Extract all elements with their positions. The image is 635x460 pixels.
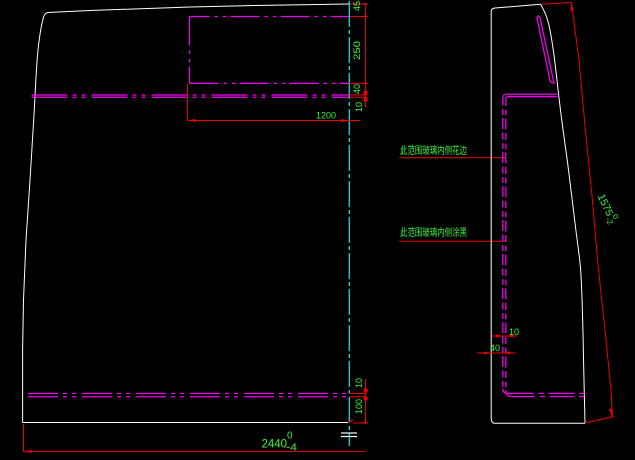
svg-text:0: 0 — [287, 431, 293, 442]
svg-text:40: 40 — [352, 84, 362, 94]
svg-text:1200: 1200 — [316, 111, 336, 121]
svg-text:40: 40 — [490, 343, 500, 353]
svg-text:45: 45 — [352, 1, 362, 11]
svg-text:250: 250 — [352, 41, 362, 60]
svg-text:2440: 2440 — [262, 437, 288, 451]
svg-text:100: 100 — [354, 399, 364, 414]
svg-text:10: 10 — [354, 102, 364, 112]
svg-text:10: 10 — [354, 378, 364, 388]
svg-text:-4: -4 — [286, 443, 298, 454]
svg-text:此范围玻璃内侧花边: 此范围玻璃内侧花边 — [400, 144, 467, 157]
svg-text:10: 10 — [509, 327, 519, 337]
svg-text:此范围玻璃内侧涂黑: 此范围玻璃内侧涂黑 — [400, 226, 467, 239]
